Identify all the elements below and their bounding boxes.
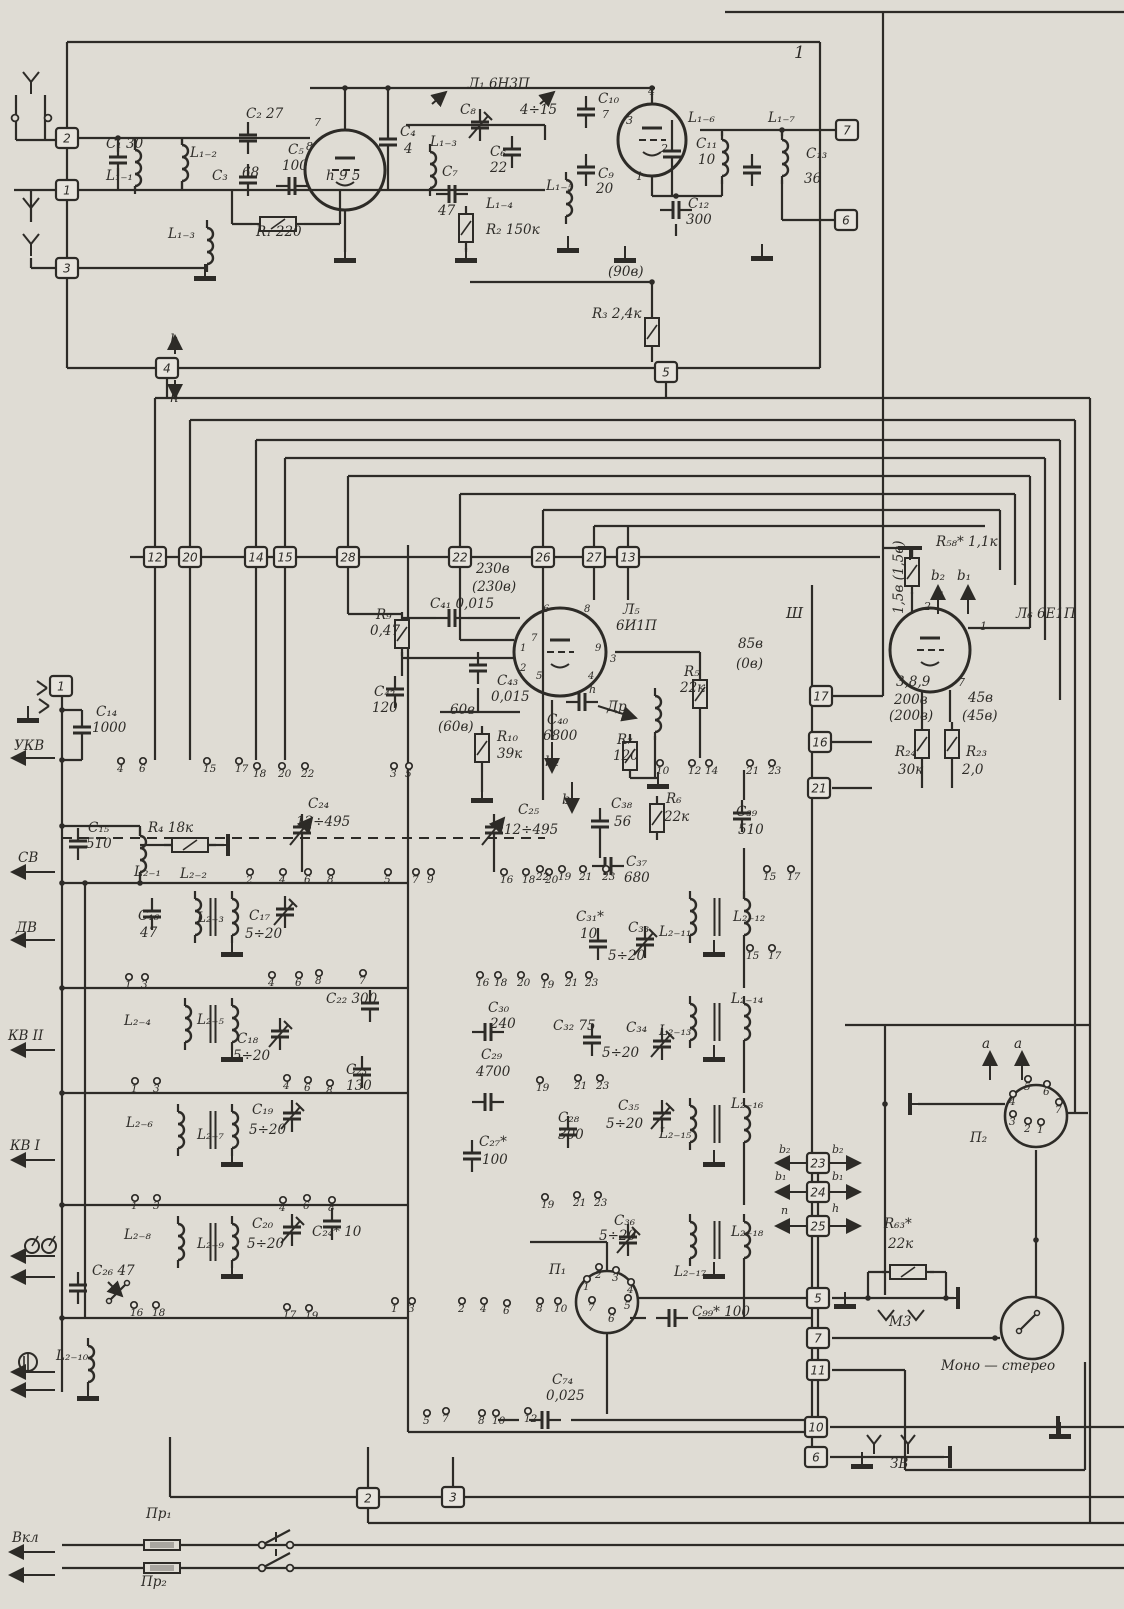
terminal-number: 5	[662, 366, 670, 380]
terminal-number: 16	[812, 736, 828, 750]
terminal-box: 20	[179, 547, 201, 567]
junction-dot	[59, 707, 65, 713]
schematic-label: 85в	[738, 636, 763, 652]
schematic-label: C₂₃	[346, 1062, 367, 1078]
schematic-label: УКВ	[14, 738, 44, 754]
switch-contact: 6	[503, 1300, 510, 1317]
schematic-label: Моно — стерео	[940, 1358, 1055, 1374]
terminal-number: 22	[452, 551, 467, 565]
schematic-label: C₁₈	[237, 1031, 259, 1047]
schematic-label: (45в)	[962, 708, 998, 724]
schematic-label: C₂₉	[481, 1047, 503, 1063]
junction-dot	[59, 1315, 65, 1321]
terminal-number: 1	[57, 680, 65, 694]
schematic-label: L₂₋₁₄	[730, 991, 763, 1007]
schematic-label: 0,47	[370, 623, 400, 639]
switch-contact: 20	[277, 763, 292, 780]
switch-contact: 17	[235, 758, 249, 775]
terminal-number: 17	[813, 690, 829, 704]
schematic-label: (0в)	[736, 656, 763, 672]
resistor-icon	[164, 838, 216, 852]
pin-number: 7	[442, 1413, 449, 1425]
schematic-label: L₂₋₁₀	[55, 1348, 89, 1364]
ground-icon	[221, 1262, 243, 1279]
schematic-label: b₁	[562, 792, 576, 808]
schematic-label: 20	[595, 181, 614, 197]
pin-number: 6	[303, 1200, 310, 1212]
ground-icon	[194, 264, 216, 281]
pin-number: 2	[594, 1269, 602, 1281]
pin-number: 23	[601, 871, 616, 883]
schematic-label: 30к	[898, 762, 924, 778]
schematic-label: L₂₋₁₃	[658, 1023, 691, 1039]
headphone-jack-icon	[867, 1435, 881, 1454]
terminal-box: 16	[809, 732, 831, 752]
schematic-label: Л₆ 6Е1П	[1015, 606, 1076, 622]
pin-number: 1	[1037, 1124, 1044, 1136]
switch-contact: 5	[405, 763, 412, 780]
resistor-icon	[915, 722, 929, 766]
schematic-label: 1	[980, 620, 987, 633]
antenna-icon	[23, 234, 39, 256]
switch-contact: 6	[1043, 1081, 1050, 1098]
pin-number: 22	[300, 768, 315, 780]
coil-icon	[178, 1216, 184, 1268]
pin-number: 8	[536, 1303, 543, 1315]
pin-number: 3	[390, 768, 397, 780]
switch-contact: 18	[253, 763, 267, 780]
schematic-label: C₃₀	[488, 1000, 510, 1016]
pin-number: 3	[153, 1200, 160, 1212]
switch-contact: 23	[593, 1192, 608, 1209]
transformer-core-icon	[715, 1221, 720, 1259]
pin-number: 23	[595, 1080, 610, 1092]
pin-number: 4	[278, 1202, 286, 1214]
schematic-label: R₇	[616, 732, 633, 748]
pin-number: 4	[282, 1080, 290, 1092]
schematic-label: L₁₋₇	[767, 110, 796, 126]
schematic-label: 3,8,9	[896, 674, 931, 690]
terminal-box: 24	[807, 1182, 829, 1202]
terminal-number: 4	[163, 362, 171, 376]
schematic-label: C₃₅	[618, 1098, 640, 1114]
pin-number: 19	[305, 1310, 319, 1322]
junction-dot	[82, 880, 88, 886]
schematic-label: C₂₇*	[479, 1134, 507, 1150]
switch-contact: 7	[359, 970, 366, 987]
ground-icon	[455, 246, 477, 263]
ground-icon	[221, 940, 243, 957]
pin-number: 19	[558, 871, 572, 883]
terminal-box: 23	[807, 1153, 829, 1173]
capacitor-icon	[577, 96, 595, 128]
switch-contact: 3	[390, 763, 397, 780]
schematic-label: C₁₇	[249, 908, 271, 924]
schematic-label: R₃ 2,4к	[591, 306, 642, 322]
schematic-label: C₂₅	[518, 802, 540, 818]
pin-number: 10	[492, 1415, 506, 1427]
schematic-label: C₆	[490, 144, 506, 160]
ground-icon	[17, 706, 39, 723]
schematic-label: C₄₁ 0,015	[430, 596, 494, 612]
switch-contact: 8	[327, 869, 334, 886]
switch-contact: 6	[139, 758, 146, 775]
pin-number: 19	[541, 1199, 555, 1211]
schematic-label: h	[832, 1202, 839, 1215]
terminal-number: 28	[340, 551, 356, 565]
pin-number: 8	[315, 975, 322, 987]
junction-dot	[59, 1202, 65, 1208]
ground-icon	[703, 1045, 725, 1062]
terminal-box: 7	[807, 1328, 829, 1348]
pin-number: 10	[554, 1303, 568, 1315]
switch-contact: 23	[767, 760, 782, 777]
schematic-label: C₃₈	[611, 796, 633, 812]
terminal-box: 4	[156, 358, 178, 378]
schematic-label: L₂₋₁₅	[658, 1126, 692, 1142]
ground-icon	[614, 246, 636, 263]
pin-number: 7	[588, 1302, 595, 1314]
terminal-box: 22	[449, 547, 471, 567]
coil-icon	[182, 137, 188, 189]
schematic-label: 10	[580, 926, 598, 942]
terminal-box: 3	[442, 1487, 464, 1507]
schematic-label: 240	[489, 1016, 516, 1032]
capacitor-icon	[69, 828, 87, 860]
schematic-label: L₂₋₇	[196, 1127, 225, 1143]
wire	[867, 1435, 874, 1444]
terminal-number: 15	[277, 551, 292, 565]
schematic-label: 1,5в (1,5в)	[891, 541, 907, 614]
schematic-label: C₁₁	[696, 136, 717, 152]
terminal-box: 6	[805, 1447, 827, 1467]
pin-number: 12	[688, 765, 702, 777]
pin-number: 5	[423, 1415, 430, 1427]
schematic-label: L₂₋₁₂	[732, 909, 765, 925]
schematic-label: 5÷20	[602, 1045, 639, 1061]
schematic-label: b₂	[779, 1143, 790, 1156]
pin-number: 1	[131, 1083, 138, 1095]
terminal-number: 20	[182, 551, 198, 565]
schematic-label: 1	[794, 43, 805, 63]
schematic-label: L₂₋₁	[133, 864, 161, 880]
schematic-label: h 9 5	[326, 168, 360, 184]
schematic-label: 0,015	[491, 689, 530, 705]
switch-contact: 7	[412, 869, 419, 886]
switch-contact: 8	[536, 1298, 543, 1315]
schematic-label: (60в)	[438, 719, 474, 735]
transformer-core-icon	[715, 1105, 720, 1143]
pin-number: 3	[141, 979, 148, 991]
schematic-label: 4700	[475, 1064, 511, 1080]
schematic-label: L₂₋₄	[123, 1013, 151, 1029]
antenna-icon	[23, 72, 39, 94]
wire	[23, 198, 31, 208]
pin-number: 17	[787, 871, 801, 883]
pin-number: 5	[405, 768, 412, 780]
schematic-label: C₂₈	[558, 1110, 580, 1126]
contact-circle-icon	[12, 115, 19, 122]
fuse-icon	[144, 1563, 180, 1573]
schematic-label: 4÷15	[519, 102, 557, 118]
schematic-label: C₂₂ 300	[326, 991, 378, 1007]
coil-icon	[690, 996, 696, 1048]
pin-number: 6	[608, 1313, 615, 1325]
terminal-box: 1	[50, 676, 72, 696]
pin-number: 17	[283, 1309, 297, 1321]
schematic-label: C₉₉* 100	[692, 1304, 750, 1320]
junction-dot	[865, 1295, 871, 1301]
switch-contact: 4	[626, 1279, 634, 1296]
schematic-label: 60в	[450, 702, 475, 718]
ground-icon	[851, 1452, 873, 1469]
switch-contact: 8	[326, 1080, 333, 1097]
schematic-canvas: 2134765122014152822262713117162123242557…	[0, 0, 1124, 1609]
terminal-box: 13	[617, 547, 639, 567]
terminal-number: 26	[535, 551, 551, 565]
switch-contact: 21	[573, 1075, 587, 1092]
schematic-label: 5	[965, 590, 972, 603]
terminal-number: 24	[810, 1186, 825, 1200]
switch-contact: 4	[278, 869, 286, 886]
switch-contact: 16	[500, 869, 514, 886]
wire	[31, 198, 39, 208]
schematic-label: 5÷20	[245, 926, 282, 942]
schematic-label: C₅	[288, 142, 304, 158]
switch-contact: 17	[787, 866, 801, 883]
schematic-label: 56	[614, 814, 632, 830]
pin-number: 3	[612, 1272, 619, 1284]
switch-contact: 19	[541, 1194, 555, 1211]
schematic-label: C₃₄	[626, 1020, 647, 1036]
switch-contact: 4	[267, 972, 275, 989]
schematic-label: 10	[698, 152, 716, 168]
pin-number: 9	[427, 874, 434, 886]
schematic-label: h	[589, 683, 596, 696]
schematic-label: C₂₄* 10	[312, 1224, 362, 1240]
schematic-label: 6800	[543, 728, 578, 744]
coil-icon	[690, 1214, 696, 1266]
resistor-icon	[905, 550, 919, 594]
schematic-label: L₁₋₃	[429, 134, 457, 150]
switch-contact: 23	[601, 866, 616, 883]
schematic-label: 4	[647, 85, 655, 98]
schematic-label: C₂₆ 47	[92, 1263, 135, 1279]
schematic-label: 510	[738, 822, 764, 838]
terminal-number: 5	[814, 1292, 822, 1306]
schematic-label: Л₅	[622, 602, 640, 618]
schematic-label: C₄₃	[497, 673, 518, 689]
pin-number: 20	[516, 977, 531, 989]
switch-contact: 6	[303, 1195, 310, 1212]
pin-number: 8	[327, 874, 334, 886]
switch-contact: 1	[391, 1298, 398, 1315]
wire	[39, 699, 49, 706]
coil-icon	[744, 1214, 750, 1266]
switch-contact: 21	[578, 866, 592, 883]
schematic-label: C₁ 30	[106, 136, 144, 152]
terminal-box: 17	[810, 686, 832, 706]
switch-contact: 3	[612, 1267, 619, 1284]
schematic-label: C₃₆	[614, 1213, 636, 1229]
schematic-label: L₂₋₂	[179, 866, 207, 882]
pin-number: 18	[152, 1307, 166, 1319]
terminal-number: 13	[620, 551, 635, 565]
schematic-label: C₄	[400, 124, 416, 140]
terminal-box: 11	[807, 1360, 829, 1380]
fuse-icon	[144, 1540, 180, 1550]
schematic-label: C₂₀	[252, 1216, 274, 1232]
pin-number: 21	[564, 977, 578, 989]
switch-contact: 3	[153, 1078, 160, 1095]
switch-contact: 6	[608, 1308, 615, 1325]
schematic-label: R₉	[375, 607, 392, 623]
pin-number: 8	[326, 1085, 333, 1097]
terminal-number: 12	[147, 551, 162, 565]
schematic-label: 8	[584, 604, 590, 615]
pin-number: 15	[203, 763, 217, 775]
terminal-box: 26	[532, 547, 554, 567]
switch-contact: 1	[131, 1195, 138, 1212]
schematic-label: L₂₋₆	[125, 1115, 154, 1131]
capacitor-icon	[469, 652, 487, 684]
pin-number: 16	[476, 977, 490, 989]
schematic-label: R₂ 150к	[485, 222, 541, 238]
schematic-label: L₂₋₃	[196, 910, 224, 926]
terminal-number: 2	[364, 1492, 372, 1506]
terminal-box: 12	[144, 547, 166, 567]
coil-icon	[88, 1338, 94, 1390]
pin-number: 2	[1023, 1123, 1031, 1135]
schematic-label: 2	[660, 142, 668, 155]
switch-contact: 4	[116, 758, 124, 775]
pin-number: 5	[384, 874, 391, 886]
schematic-label: 1000	[92, 720, 127, 736]
schematic-label: КВ I	[9, 1138, 41, 1154]
wire	[37, 681, 47, 688]
coil-icon	[207, 220, 213, 272]
schematic-label: Вкл	[11, 1530, 39, 1546]
contact-circle-icon	[259, 1565, 266, 1572]
contact-circle-icon	[45, 115, 52, 122]
schematic-label: R₆₃*	[883, 1216, 912, 1232]
pin-number: 15	[763, 871, 777, 883]
pin-number: 16	[500, 874, 514, 886]
schematic-label: 36	[804, 171, 822, 187]
schematic-label: C₁₀	[598, 91, 620, 107]
schematic-label: 2,0	[961, 762, 984, 778]
switch-contact: 23	[595, 1075, 610, 1092]
terminal-number: 3	[449, 1491, 457, 1505]
switch-contact: 4	[282, 1075, 290, 1092]
schematic-label: L₂₋₁₁	[658, 924, 691, 940]
schematic-label: L₁₋₁	[105, 168, 133, 184]
schematic-label: C₃₉	[736, 804, 758, 820]
schematic-label: 45в	[967, 690, 993, 706]
terminal-box: 5	[655, 362, 677, 382]
terminal-number: 11	[810, 1364, 825, 1378]
switch-contact: 5	[384, 869, 391, 886]
pin-number: 23	[593, 1197, 608, 1209]
switch-contact: 20	[516, 972, 531, 989]
capacitor-icon	[577, 154, 595, 186]
pin-number: 16	[130, 1307, 144, 1319]
schematic-label: Др	[606, 699, 627, 715]
ground-icon	[221, 1150, 243, 1167]
schematic-label: Ш	[785, 604, 804, 622]
schematic-label: 4	[403, 141, 413, 157]
pin-number: 17	[768, 950, 782, 962]
schematic-label: 12÷495	[504, 822, 558, 838]
schematic-label: b₁	[957, 568, 971, 584]
terminal-number: 27	[586, 551, 602, 565]
schematic-label: 5÷20	[233, 1048, 270, 1064]
schematic-label: 680	[624, 870, 650, 886]
ground-icon	[77, 1384, 99, 1401]
pin-number: 21	[573, 1080, 587, 1092]
coil-icon	[178, 1104, 184, 1156]
schematic-label: 2	[519, 663, 526, 674]
schematic-label: 0,025	[546, 1388, 585, 1404]
contact-circle-icon	[287, 1565, 294, 1572]
schematic-label: L₂₋₁₈	[730, 1224, 764, 1240]
resistor-icon	[882, 1265, 934, 1279]
switch-contact: 21	[572, 1192, 586, 1209]
terminal-box: 5	[807, 1288, 829, 1308]
schematic-label: C₇	[442, 164, 458, 180]
capacitor-icon	[276, 177, 308, 195]
schematic-label: 120	[372, 700, 398, 716]
pin-number: 3	[1009, 1116, 1016, 1128]
terminal-number: 10	[808, 1421, 824, 1435]
wire	[908, 1435, 915, 1444]
schematic-label: C₁₉	[252, 1102, 274, 1118]
schematic-label: 120	[613, 748, 639, 764]
pin-number: 18	[253, 768, 267, 780]
schematic-label: C₃₃	[628, 920, 649, 936]
pin-number: 7	[412, 874, 419, 886]
junction-dot	[137, 880, 143, 886]
schematic-label: C₇₄	[552, 1372, 573, 1388]
schematic-label: 7	[602, 108, 609, 121]
junction-dot	[943, 1295, 949, 1301]
switch-contact: 19	[558, 866, 572, 883]
schematic-label: b₁	[832, 1170, 843, 1183]
resistor-icon	[945, 722, 959, 766]
switch-contact: 3	[141, 974, 148, 991]
resistor-icon	[650, 796, 664, 840]
ground-icon	[703, 1150, 725, 1167]
wire	[37, 688, 47, 695]
schematic-label: 4	[587, 671, 594, 682]
junction-dot	[59, 880, 65, 886]
terminal-number: 7	[843, 124, 851, 138]
pin-number: 7	[359, 975, 366, 987]
antenna-input-icon	[37, 681, 47, 695]
schematic-label: L₂₋₅	[196, 1012, 225, 1028]
schematic-label: L₂₋₈	[123, 1227, 152, 1243]
chassis-bar-icon	[908, 1093, 922, 1115]
schematic-label: 5÷20	[247, 1236, 284, 1252]
schematic-label: 4	[936, 590, 944, 603]
terminal-box: 2	[357, 1488, 379, 1508]
switch-contact: 6	[304, 869, 311, 886]
switch-contact: 7	[588, 1297, 595, 1314]
switch-contact: 10	[554, 1298, 568, 1315]
switch-contact: 7	[442, 1408, 449, 1425]
schematic-label: 3	[626, 114, 633, 127]
schematic-label: 6	[543, 604, 550, 615]
